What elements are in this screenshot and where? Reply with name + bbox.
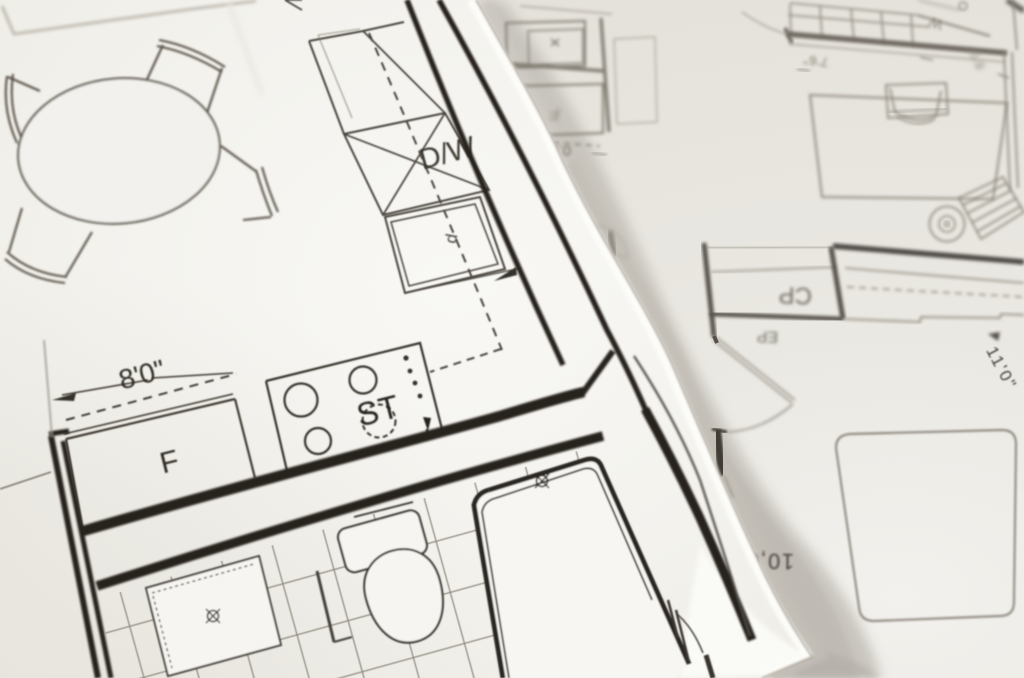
svg-text:CP: CP [778,281,812,309]
svg-text:EP: EP [756,327,778,345]
svg-text:7'6": 7'6" [802,52,829,70]
